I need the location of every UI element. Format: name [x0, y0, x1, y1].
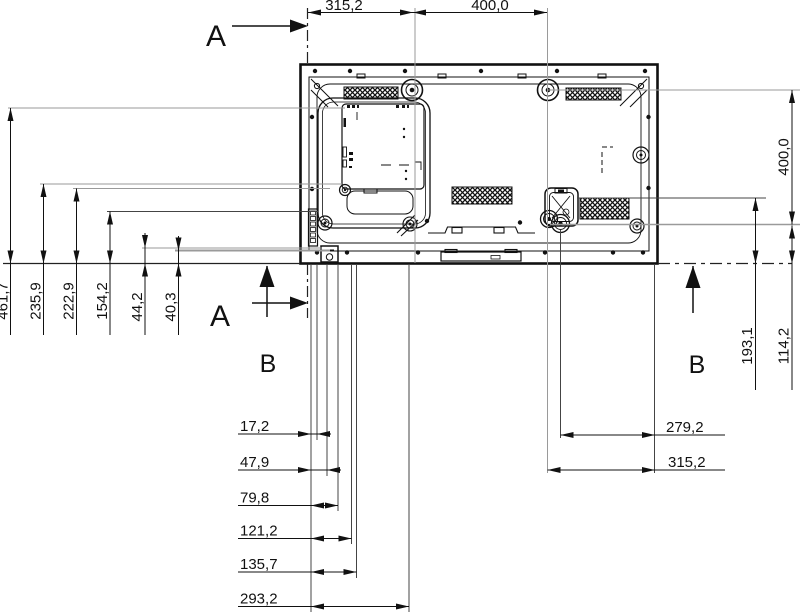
- dim-label-left-40: 40,3: [163, 292, 180, 321]
- dim-label-left-154: 154,2: [94, 282, 111, 320]
- section-label-b-right: B: [689, 351, 706, 379]
- dim-label-left-235: 235,9: [28, 282, 45, 320]
- dim-label-bl-79: 79,8: [240, 490, 269, 507]
- dim-label-bl-135: 135,7: [240, 556, 278, 573]
- vent-grille-bottom-center: [452, 187, 512, 204]
- dim-label-bl-121: 121,2: [240, 523, 278, 540]
- section-arrow-a-bottom: [252, 297, 308, 310]
- dim-label-bl-17: 17,2: [240, 418, 269, 435]
- dim-label-br-279: 279,2: [666, 419, 704, 436]
- section-arrow-b-left: [260, 266, 275, 318]
- technical-drawing-canvas: 315,2 400,0 461,7 235,9 222,9 154,2 44,2…: [0, 0, 800, 614]
- dim-label-left-461: 461,7: [0, 282, 12, 320]
- dim-label-right-193: 193,1: [739, 327, 756, 365]
- section-label-b-left: B: [260, 350, 277, 378]
- vent-grille-bottom-right: [580, 198, 629, 219]
- drawing-page: 315,2 400,0 461,7 235,9 222,9 154,2 44,2…: [0, 0, 800, 614]
- section-arrow-b-right: [686, 266, 701, 313]
- section-label-a-top: A: [206, 20, 226, 53]
- section-arrow-a-top: [232, 20, 308, 33]
- vent-grille-top-left: [344, 87, 398, 99]
- dim-label-right-400: 400,0: [776, 138, 793, 176]
- dim-label-br-315: 315,2: [668, 454, 706, 471]
- dim-label-left-44: 44,2: [129, 292, 146, 321]
- dim-label-bl-293: 293,2: [240, 591, 278, 608]
- dim-label-left-222: 222,9: [61, 282, 78, 320]
- dim-label-right-114: 114,2: [776, 328, 793, 364]
- dim-label-top-400: 400,0: [471, 0, 509, 14]
- dim-label-bl-47: 47,9: [240, 454, 269, 471]
- dim-label-top-315: 315,2: [325, 0, 363, 14]
- section-label-a-bottom: A: [210, 300, 230, 333]
- tv-rear-body: [301, 65, 658, 264]
